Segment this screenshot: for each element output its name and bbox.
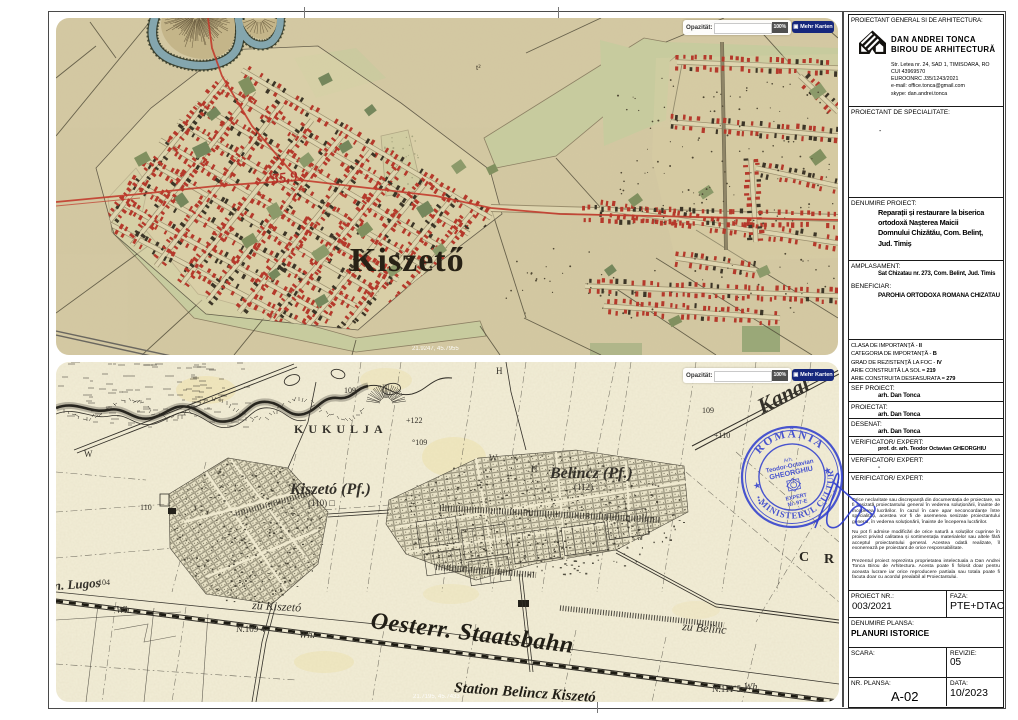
svg-text:110: 110	[140, 503, 152, 512]
svg-text:❧: ❧	[386, 279, 393, 288]
svg-text:+110: +110	[714, 431, 730, 440]
svg-text:Kiszetó (Pf.): Kiszetó (Pf.)	[289, 481, 371, 498]
svg-text:104: 104	[98, 578, 110, 587]
svg-text:Belincz (Pf.): Belincz (Pf.)	[549, 465, 633, 482]
svg-text:+122: +122	[406, 416, 423, 425]
svg-text:°109: °109	[412, 438, 427, 447]
svg-text:N.111’5: N.111’5	[712, 684, 742, 694]
svg-text:C: C	[799, 550, 809, 565]
svg-text:Wh.: Wh.	[299, 630, 315, 641]
svg-text:★: ★	[752, 480, 762, 491]
svg-text:Wh.: Wh.	[744, 682, 760, 693]
svg-text:W: W	[84, 449, 93, 459]
svg-text:N.109 4: N.109 4	[236, 624, 265, 634]
svg-text:H: H	[496, 366, 503, 376]
svg-text:55,9: 55,9	[271, 169, 300, 188]
svg-text:Kiszető: Kiszető	[350, 242, 465, 279]
svg-text:109: 109	[344, 386, 356, 395]
svg-text:★: ★	[822, 465, 832, 476]
svg-text:H: H	[531, 464, 538, 474]
svg-text:zu Kiszetó: zu Kiszetó	[251, 598, 302, 615]
svg-text:109: 109	[702, 406, 714, 415]
svg-text:t²: t²	[476, 63, 481, 72]
svg-text:21.9247, 45.7955: 21.9247, 45.7955	[412, 346, 459, 352]
svg-text:Wh.: Wh.	[116, 605, 132, 616]
svg-text:(112): (112)	[574, 482, 593, 492]
svg-text:KUKULJA: KUKULJA	[294, 422, 388, 436]
svg-text:(110) □: (110) □	[308, 498, 335, 508]
svg-text:W: W	[489, 453, 498, 463]
svg-text:R: R	[824, 552, 835, 567]
svg-text:21.7195, 45.7433: 21.7195, 45.7433	[413, 694, 460, 700]
